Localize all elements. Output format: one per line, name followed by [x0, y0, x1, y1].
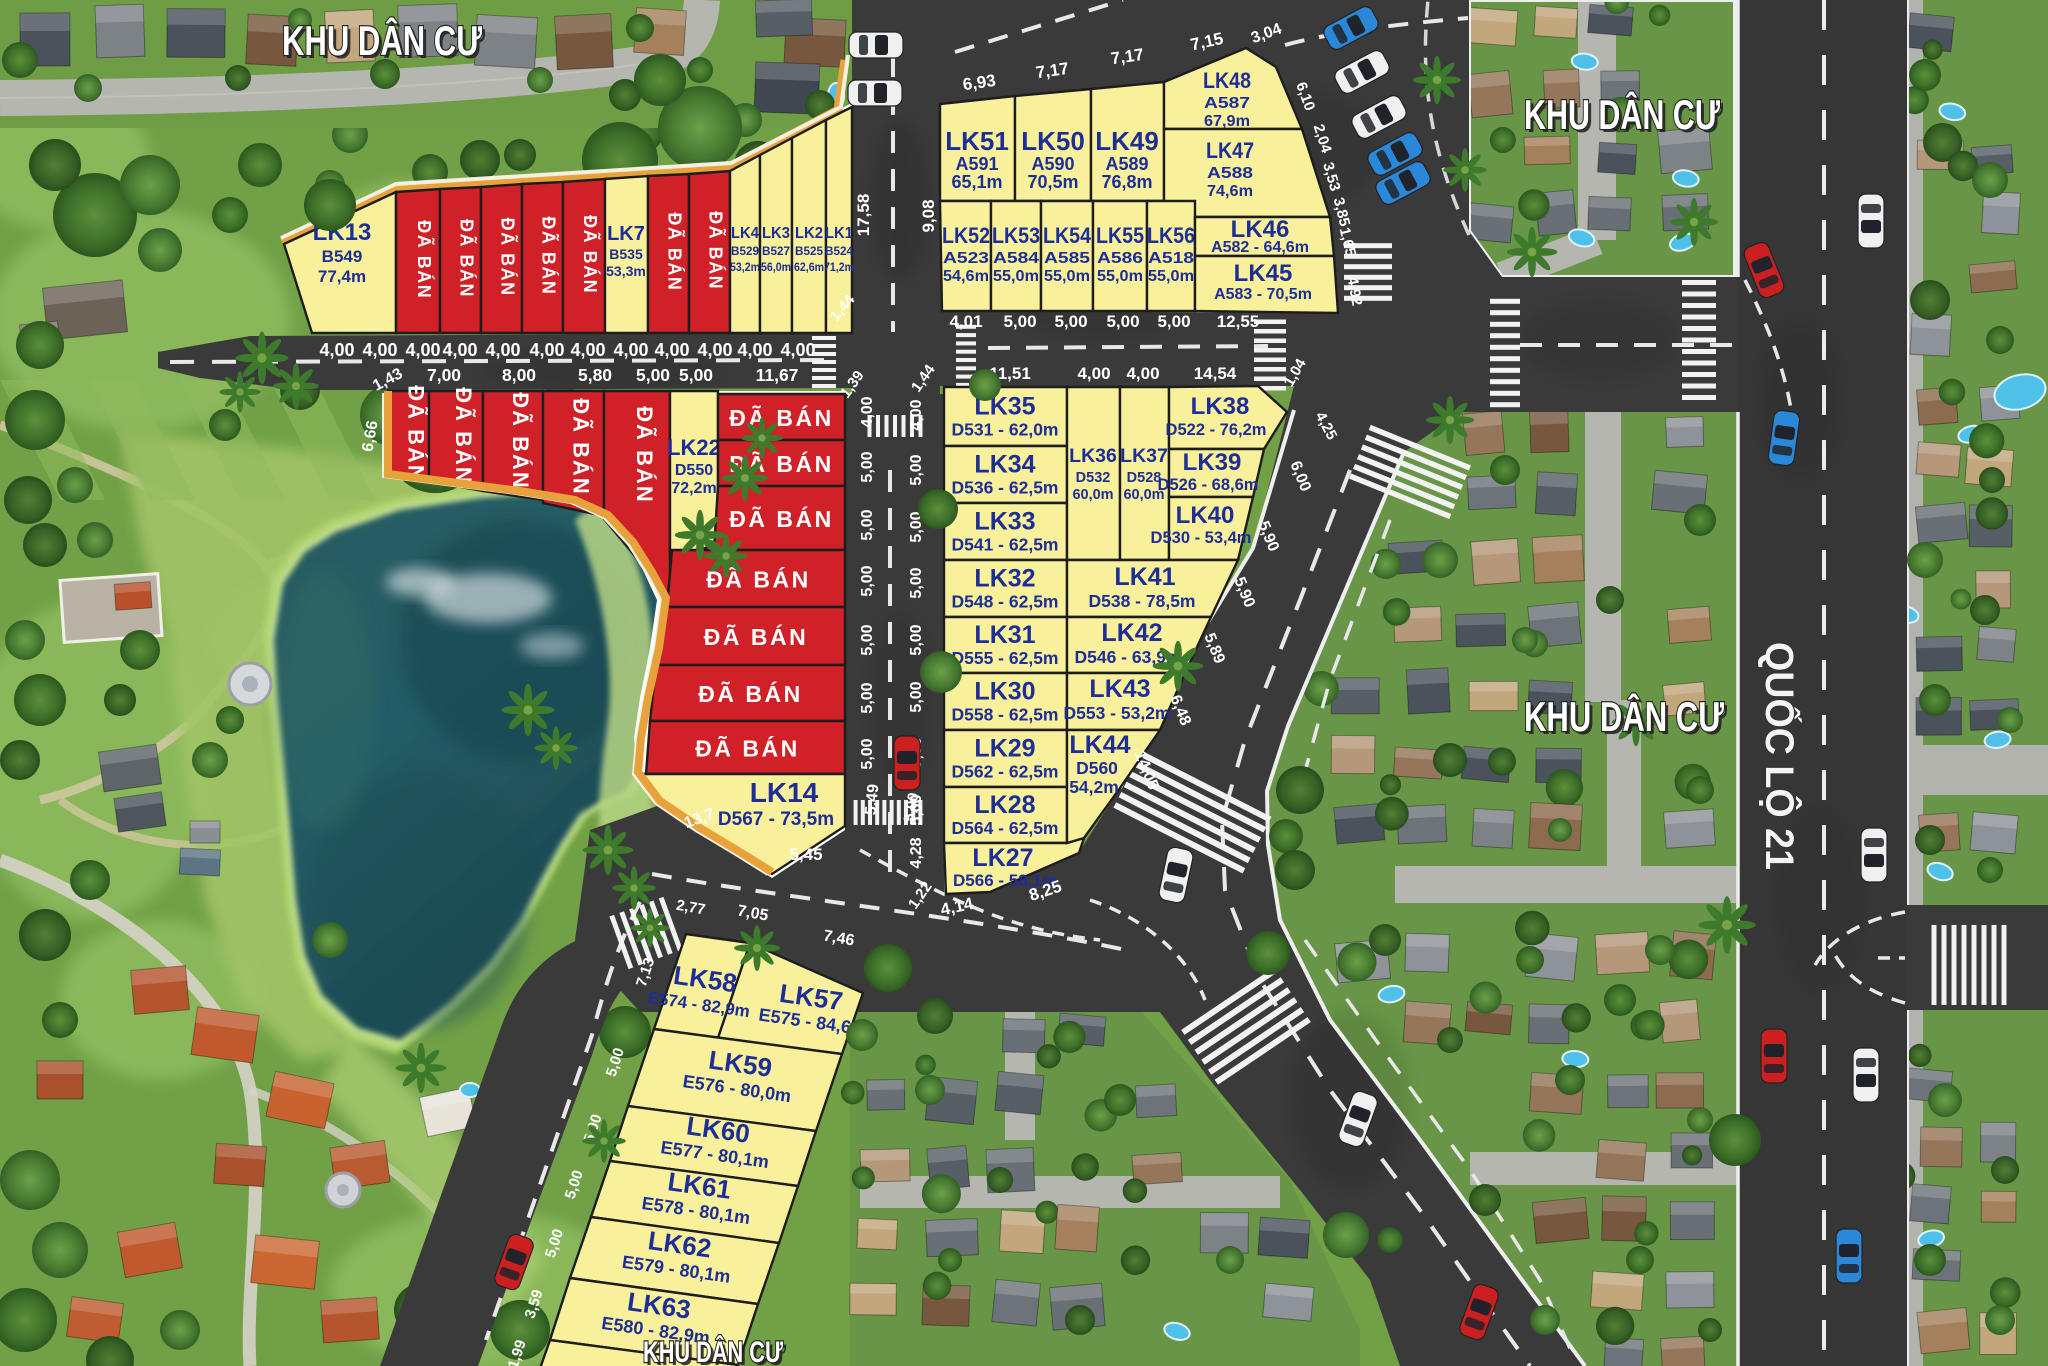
svg-text:67,9m: 67,9m: [1204, 113, 1250, 130]
svg-text:ĐÃ BÁN: ĐÃ BÁN: [632, 406, 657, 504]
svg-text:LK3: LK3: [762, 225, 790, 242]
svg-text:53,3m: 53,3m: [606, 263, 646, 279]
svg-text:ĐÃ BÁN: ĐÃ BÁN: [498, 218, 519, 297]
svg-text:KHU DÂN CƯ: KHU DÂN CƯ: [1524, 692, 1724, 740]
svg-text:ĐÃ BÁN: ĐÃ BÁN: [706, 211, 727, 290]
svg-text:D567 - 73,5m: D567 - 73,5m: [718, 809, 834, 830]
svg-text:ĐÃ BÁN: ĐÃ BÁN: [665, 212, 686, 291]
svg-text:55,0m: 55,0m: [993, 268, 1039, 285]
svg-text:D553 - 53,2m: D553 - 53,2m: [1063, 703, 1170, 723]
svg-text:ĐÃ BÁN: ĐÃ BÁN: [414, 220, 435, 299]
svg-text:LK32: LK32: [974, 565, 1035, 593]
svg-text:70,5m: 70,5m: [1027, 172, 1078, 192]
svg-text:5,00: 5,00: [908, 624, 925, 655]
svg-text:D564 - 62,5m: D564 - 62,5m: [951, 818, 1058, 838]
svg-text:D528: D528: [1127, 470, 1162, 486]
svg-text:4,00: 4,00: [485, 340, 520, 360]
svg-text:62,6m: 62,6m: [794, 260, 824, 274]
svg-text:A583 - 70,5m: A583 - 70,5m: [1214, 286, 1312, 303]
svg-text:5,49: 5,49: [863, 783, 883, 816]
svg-text:5,00: 5,00: [859, 624, 876, 655]
svg-text:5,00: 5,00: [908, 567, 925, 598]
svg-text:LK53: LK53: [992, 223, 1040, 248]
svg-text:77,4m: 77,4m: [318, 267, 366, 286]
svg-text:72,2m: 72,2m: [671, 480, 716, 497]
svg-text:LK48: LK48: [1203, 68, 1251, 93]
svg-text:ĐÃ BÁN: ĐÃ BÁN: [569, 398, 594, 496]
svg-text:B524: B524: [825, 244, 853, 258]
svg-text:LK38: LK38: [1191, 393, 1250, 420]
svg-text:ĐÃ BÁN: ĐÃ BÁN: [706, 566, 810, 593]
svg-text:5,00: 5,00: [859, 509, 876, 540]
svg-text:4,00: 4,00: [654, 340, 689, 360]
svg-text:4,00: 4,00: [362, 340, 397, 360]
svg-text:5,80: 5,80: [578, 365, 612, 385]
svg-text:LK37: LK37: [1120, 445, 1168, 467]
svg-text:B535: B535: [609, 246, 643, 262]
svg-text:D560: D560: [1076, 758, 1118, 778]
svg-text:D541 - 62,5m: D541 - 62,5m: [951, 535, 1058, 555]
svg-text:17,58: 17,58: [854, 194, 873, 237]
svg-text:A589: A589: [1105, 154, 1148, 174]
svg-text:12,55: 12,55: [1217, 312, 1260, 331]
svg-text:74,6m: 74,6m: [1207, 183, 1253, 200]
svg-text:D548 - 62,5m: D548 - 62,5m: [951, 592, 1058, 612]
svg-text:B549: B549: [322, 247, 363, 266]
svg-text:B527: B527: [762, 244, 790, 258]
svg-text:LK36: LK36: [1069, 445, 1117, 467]
svg-text:ĐÃ BÁN: ĐÃ BÁN: [404, 385, 429, 483]
svg-text:5,00: 5,00: [908, 681, 925, 712]
svg-text:LK4: LK4: [731, 225, 759, 242]
svg-text:5,00: 5,00: [679, 365, 713, 385]
svg-text:9,08: 9,08: [919, 199, 938, 232]
svg-text:D531 - 62,0m: D531 - 62,0m: [951, 420, 1058, 440]
svg-text:D526 - 68,6m: D526 - 68,6m: [1158, 476, 1259, 494]
svg-text:QUỐC LỘ 21: QUỐC LỘ 21: [1757, 642, 1803, 870]
svg-text:4,00: 4,00: [908, 399, 925, 430]
svg-text:LK27: LK27: [972, 844, 1033, 872]
svg-text:5,00: 5,00: [1106, 312, 1139, 331]
svg-text:A523: A523: [943, 250, 989, 267]
svg-text:4,00: 4,00: [1077, 364, 1110, 383]
svg-text:A587: A587: [1204, 95, 1250, 112]
svg-text:4,00: 4,00: [737, 340, 772, 360]
svg-text:4,00: 4,00: [859, 396, 876, 427]
svg-text:5,00: 5,00: [908, 454, 925, 485]
svg-text:53,2m: 53,2m: [730, 260, 760, 274]
svg-text:LK51: LK51: [945, 126, 1009, 156]
svg-text:4,00: 4,00: [613, 340, 648, 360]
svg-text:LK39: LK39: [1183, 449, 1242, 476]
svg-text:LK30: LK30: [974, 678, 1035, 706]
svg-text:5,00: 5,00: [1054, 312, 1087, 331]
svg-text:D558 - 62,5m: D558 - 62,5m: [951, 705, 1058, 725]
svg-text:LK47: LK47: [1206, 138, 1254, 163]
svg-text:5,00: 5,00: [1157, 312, 1190, 331]
svg-text:LK14: LK14: [750, 777, 819, 808]
svg-text:LK41: LK41: [1114, 563, 1175, 591]
svg-text:A518: A518: [1148, 250, 1194, 267]
svg-text:7,00: 7,00: [427, 365, 461, 385]
svg-text:5,00: 5,00: [1003, 312, 1036, 331]
svg-text:A585: A585: [1044, 250, 1090, 267]
svg-text:LK50: LK50: [1021, 126, 1085, 156]
svg-text:60,0m: 60,0m: [1072, 487, 1113, 503]
svg-text:KHU DÂN CƯ: KHU DÂN CƯ: [643, 1335, 783, 1366]
svg-text:LK40: LK40: [1176, 502, 1235, 529]
svg-text:LK43: LK43: [1089, 675, 1150, 703]
svg-text:ĐÃ BÁN: ĐÃ BÁN: [457, 219, 478, 298]
svg-text:5,00: 5,00: [859, 682, 876, 713]
svg-text:ĐÃ BÁN: ĐÃ BÁN: [729, 505, 833, 532]
svg-text:76,8m: 76,8m: [1101, 172, 1152, 192]
svg-text:4,00: 4,00: [697, 340, 732, 360]
svg-text:ĐÃ BÁN: ĐÃ BÁN: [451, 387, 476, 485]
svg-text:LK29: LK29: [974, 735, 1035, 763]
svg-text:4,00: 4,00: [405, 340, 440, 360]
svg-text:LK54: LK54: [1043, 223, 1092, 248]
svg-text:LK22: LK22: [667, 435, 721, 460]
svg-text:4,00: 4,00: [319, 340, 354, 360]
svg-text:4,00: 4,00: [1126, 364, 1159, 383]
svg-text:65,1m: 65,1m: [951, 172, 1002, 192]
svg-text:ĐÃ BÁN: ĐÃ BÁN: [580, 215, 601, 294]
svg-text:LK33: LK33: [974, 508, 1035, 536]
svg-text:LK1: LK1: [825, 225, 853, 242]
svg-text:4,01: 4,01: [949, 312, 982, 331]
svg-text:14,54: 14,54: [1194, 364, 1237, 383]
svg-text:11,67: 11,67: [756, 365, 799, 385]
svg-text:5,00: 5,00: [859, 565, 876, 596]
svg-text:KHU DÂN CƯ: KHU DÂN CƯ: [282, 16, 482, 64]
svg-text:D532: D532: [1076, 470, 1111, 486]
svg-text:LK49: LK49: [1095, 126, 1159, 156]
svg-text:4,00: 4,00: [780, 340, 815, 360]
svg-text:5,45: 5,45: [789, 845, 822, 864]
svg-text:LK28: LK28: [974, 791, 1035, 819]
svg-text:A588: A588: [1207, 165, 1253, 182]
svg-text:D550: D550: [675, 462, 713, 479]
svg-text:LK55: LK55: [1096, 223, 1144, 248]
svg-text:D522 - 76,2m: D522 - 76,2m: [1166, 421, 1267, 439]
svg-text:4,28: 4,28: [908, 837, 925, 868]
svg-text:LK2: LK2: [795, 225, 823, 242]
svg-text:LK42: LK42: [1101, 619, 1162, 647]
svg-text:55,0m: 55,0m: [1044, 268, 1090, 285]
svg-text:71,2m: 71,2m: [824, 260, 854, 274]
svg-text:ĐÃ BÁN: ĐÃ BÁN: [539, 216, 560, 295]
svg-text:D562 - 62,5m: D562 - 62,5m: [951, 762, 1058, 782]
svg-text:LK45: LK45: [1234, 260, 1293, 287]
svg-text:D530 - 53,4m: D530 - 53,4m: [1151, 529, 1252, 547]
svg-text:B529: B529: [731, 244, 759, 258]
svg-text:54,2m: 54,2m: [1069, 777, 1119, 797]
svg-text:LK34: LK34: [974, 451, 1035, 479]
svg-text:LK44: LK44: [1069, 731, 1130, 759]
svg-text:55,0m: 55,0m: [1148, 268, 1194, 285]
svg-text:54,6m: 54,6m: [943, 268, 989, 285]
svg-text:D536 - 62,5m: D536 - 62,5m: [951, 478, 1058, 498]
svg-text:5,00: 5,00: [859, 451, 876, 482]
svg-text:ĐÃ BÁN: ĐÃ BÁN: [695, 735, 799, 762]
svg-text:A582 - 64,6m: A582 - 64,6m: [1211, 239, 1309, 256]
svg-text:8,00: 8,00: [502, 365, 536, 385]
svg-text:4,00: 4,00: [442, 340, 477, 360]
svg-text:4,00: 4,00: [529, 340, 564, 360]
svg-text:ĐÃ BÁN: ĐÃ BÁN: [508, 392, 533, 490]
svg-text:LK31: LK31: [974, 621, 1035, 649]
svg-text:4,00: 4,00: [570, 340, 605, 360]
svg-text:ĐÃ BÁN: ĐÃ BÁN: [729, 404, 833, 431]
svg-text:A586: A586: [1097, 250, 1143, 267]
svg-text:A591: A591: [955, 154, 998, 174]
svg-text:A584: A584: [993, 250, 1039, 267]
svg-text:ĐÃ BÁN: ĐÃ BÁN: [704, 623, 808, 650]
svg-text:55,0m: 55,0m: [1097, 268, 1143, 285]
svg-text:5,00: 5,00: [636, 365, 670, 385]
svg-text:LK52: LK52: [942, 223, 990, 248]
svg-text:KHU DÂN CƯ: KHU DÂN CƯ: [1524, 90, 1720, 138]
svg-text:LK56: LK56: [1147, 223, 1195, 248]
svg-text:ĐÃ BÁN: ĐÃ BÁN: [698, 680, 802, 707]
svg-text:B525: B525: [795, 244, 823, 258]
svg-text:LK7: LK7: [607, 223, 645, 245]
svg-text:56,0m: 56,0m: [761, 260, 791, 274]
svg-text:D538 - 78,5m: D538 - 78,5m: [1088, 591, 1195, 611]
svg-text:A590: A590: [1031, 154, 1074, 174]
svg-text:5,00: 5,00: [859, 738, 876, 769]
svg-text:D555 - 62,5m: D555 - 62,5m: [951, 648, 1058, 668]
